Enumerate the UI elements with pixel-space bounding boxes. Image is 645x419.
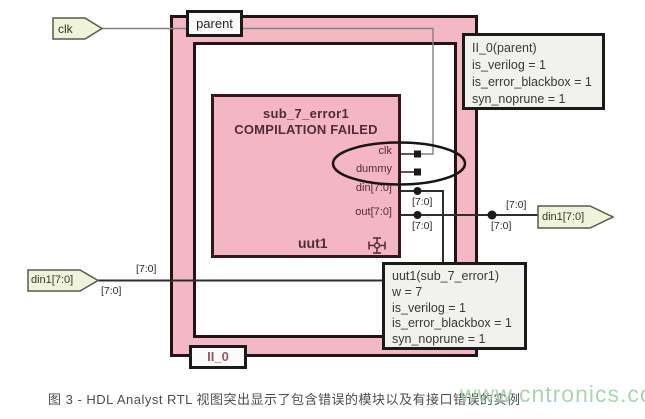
bus-width-label: [7:0]: [506, 199, 526, 211]
submodule-title: sub_7_error1: [214, 106, 398, 121]
parent-annotation-line: is_error_blackbox = 1: [472, 74, 595, 91]
out-net-connection-dot: [488, 211, 497, 220]
clk-port-label: clk: [58, 22, 73, 36]
uut1-annotation-line: syn_noprune = 1: [392, 332, 517, 348]
figure-caption: 图 3 - HDL Analyst RTL 视图突出显示了包含错误的模块以及有接…: [48, 389, 521, 408]
rtl-schematic-figure: sub_7_error1 COMPILATION FAILED clk dumm…: [0, 0, 645, 419]
parent-annotation-title: II_0(parent): [472, 40, 595, 57]
uut1-annotation-line: w = 7: [392, 285, 517, 301]
instance-name-uut1: uut1: [298, 235, 328, 251]
uut1-annotation-box: uut1(sub_7_error1) w = 7 is_verilog = 1 …: [382, 262, 527, 350]
compilation-failed-label: COMPILATION FAILED: [214, 122, 398, 137]
bus-width-label: [7:0]: [136, 263, 156, 275]
port-label-din: din[7:0]: [356, 182, 392, 194]
bus-width-label: [7:0]: [412, 196, 432, 208]
bus-width-label: [7:0]: [412, 220, 432, 232]
port-label-out: out[7:0]: [355, 206, 392, 218]
din1-output-label: din1[7:0]: [542, 211, 584, 223]
parent-annotation-line: syn_noprune = 1: [472, 91, 595, 108]
din1-input-label: din1[7:0]: [31, 274, 73, 286]
port-label-dummy: dummy: [356, 163, 392, 175]
parent-annotation-line: is_verilog = 1: [472, 57, 595, 74]
watermark-text: www.cntronics.com: [460, 381, 645, 408]
uut1-annotation-line: is_error_blackbox = 1: [392, 316, 517, 332]
instance-label-ii0: II_0: [189, 345, 247, 369]
port-label-clk: clk: [379, 145, 392, 157]
uut1-annotation-line: is_verilog = 1: [392, 301, 517, 317]
bus-width-label: [7:0]: [101, 285, 121, 297]
parent-annotation-box: II_0(parent) is_verilog = 1 is_error_bla…: [462, 33, 605, 110]
bus-width-label: [7:0]: [491, 220, 511, 232]
parent-module-label: parent: [186, 10, 243, 37]
error-submodule-block: sub_7_error1 COMPILATION FAILED clk dumm…: [211, 94, 401, 258]
uut1-annotation-title: uut1(sub_7_error1): [392, 269, 517, 285]
